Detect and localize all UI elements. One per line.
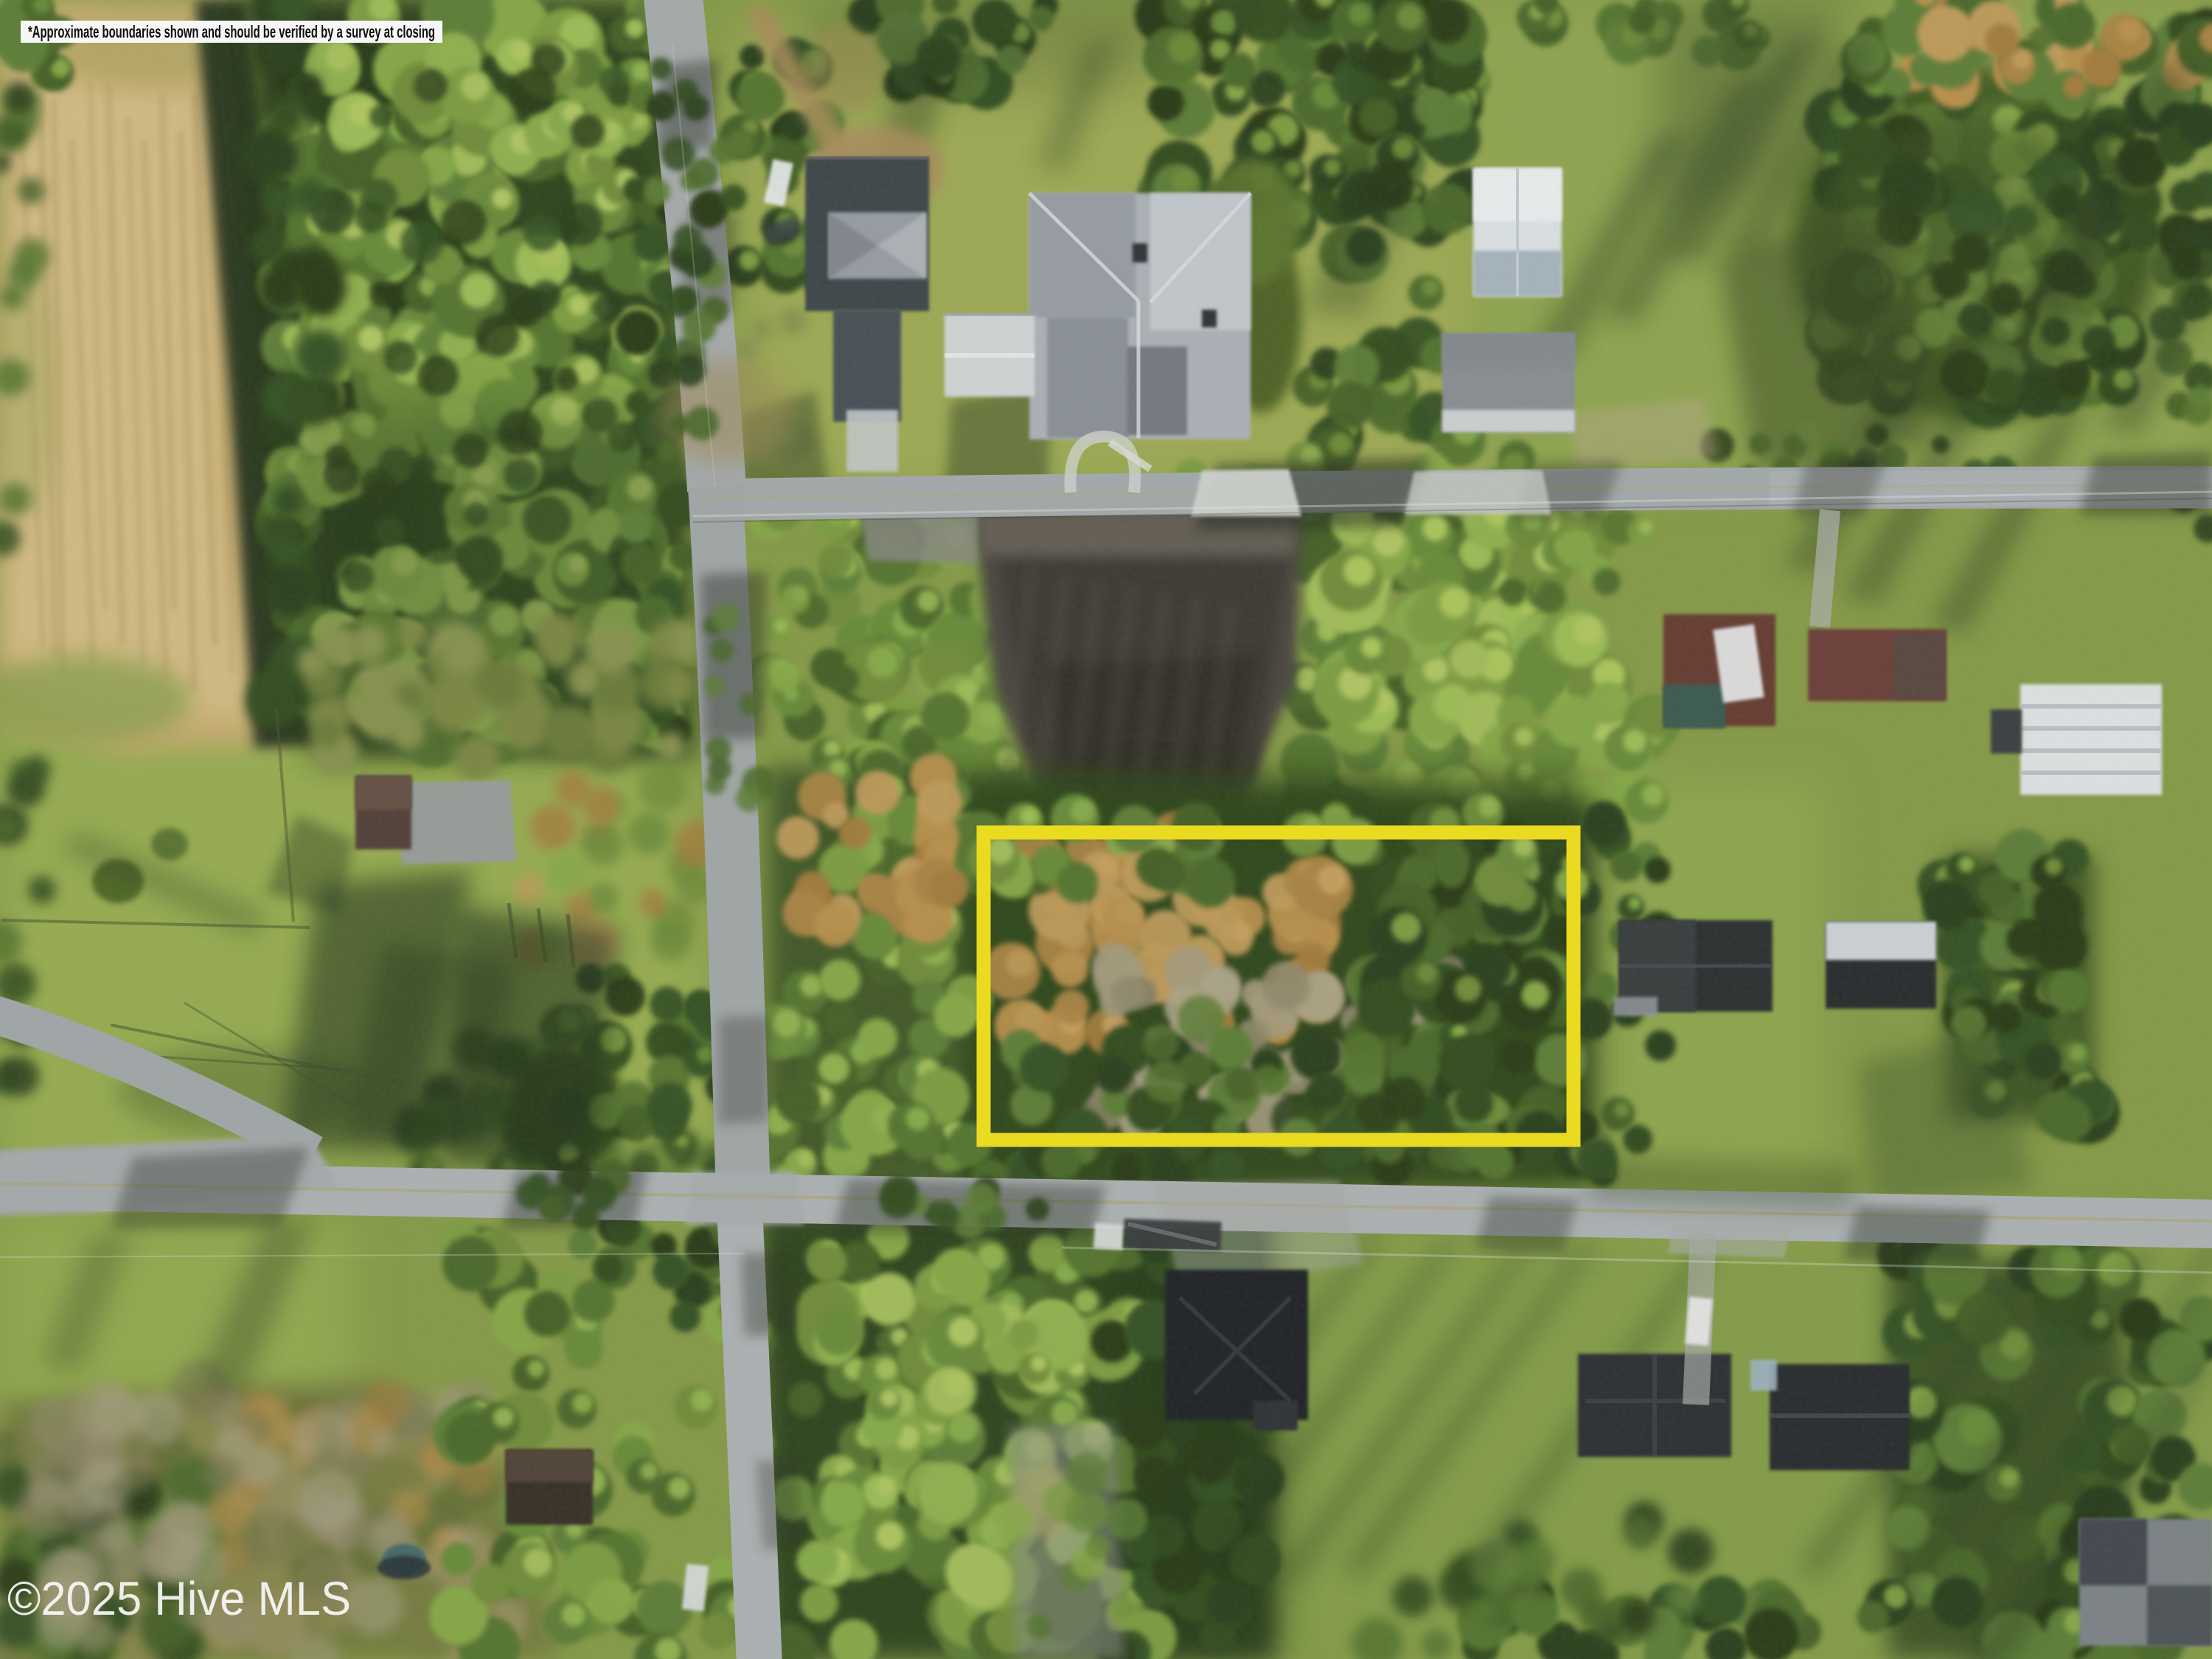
svg-text:*Approximate boundaries shown: *Approximate boundaries shown and should… — [28, 22, 435, 41]
svg-text:©2025 Hive MLS: ©2025 Hive MLS — [7, 1572, 351, 1625]
